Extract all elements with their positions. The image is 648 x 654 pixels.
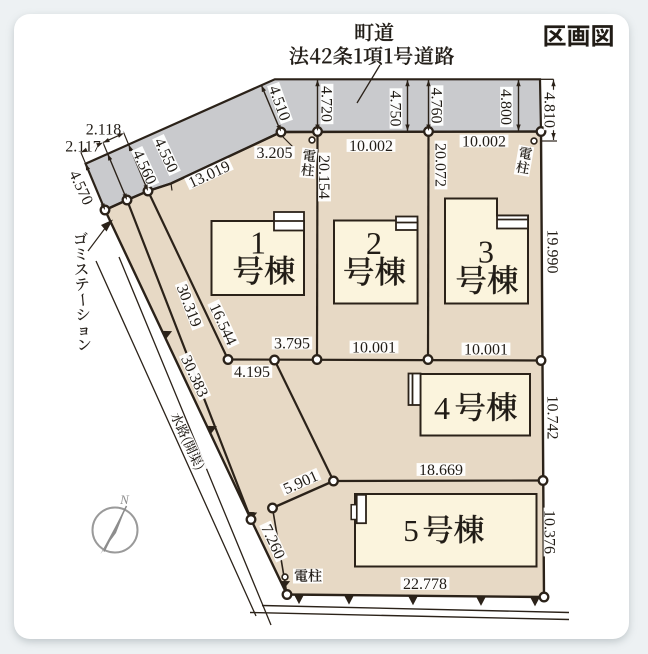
- svg-text:4.800: 4.800: [497, 89, 514, 125]
- svg-text:N: N: [119, 492, 130, 507]
- svg-text:2.118: 2.118: [86, 122, 121, 139]
- svg-text:19.990: 19.990: [544, 230, 561, 274]
- svg-text:20.072: 20.072: [432, 143, 449, 187]
- svg-text:1: 1: [250, 225, 266, 261]
- svg-text:18.669: 18.669: [419, 462, 463, 479]
- svg-text:4.195: 4.195: [234, 364, 270, 381]
- svg-text:10.001: 10.001: [464, 342, 508, 359]
- svg-text:3.795: 3.795: [274, 336, 310, 353]
- svg-text:3: 3: [478, 234, 494, 270]
- svg-text:2: 2: [366, 225, 382, 261]
- svg-text:10.742: 10.742: [544, 396, 561, 440]
- svg-text:4.750: 4.750: [387, 91, 404, 127]
- svg-text:22.778: 22.778: [403, 576, 447, 593]
- svg-text:4.810: 4.810: [541, 92, 558, 128]
- svg-text:10.002: 10.002: [462, 134, 506, 151]
- svg-text:3.205: 3.205: [257, 145, 293, 162]
- svg-text:10.001: 10.001: [352, 340, 396, 357]
- svg-text:5: 5: [403, 513, 419, 548]
- svg-text:2.117: 2.117: [65, 139, 100, 156]
- svg-text:4: 4: [434, 390, 450, 426]
- svg-text:4.760: 4.760: [428, 88, 445, 124]
- svg-text:4.720: 4.720: [318, 86, 335, 122]
- svg-text:10.002: 10.002: [349, 138, 393, 155]
- svg-text:10.376: 10.376: [541, 510, 558, 554]
- svg-text:20.154: 20.154: [315, 155, 332, 199]
